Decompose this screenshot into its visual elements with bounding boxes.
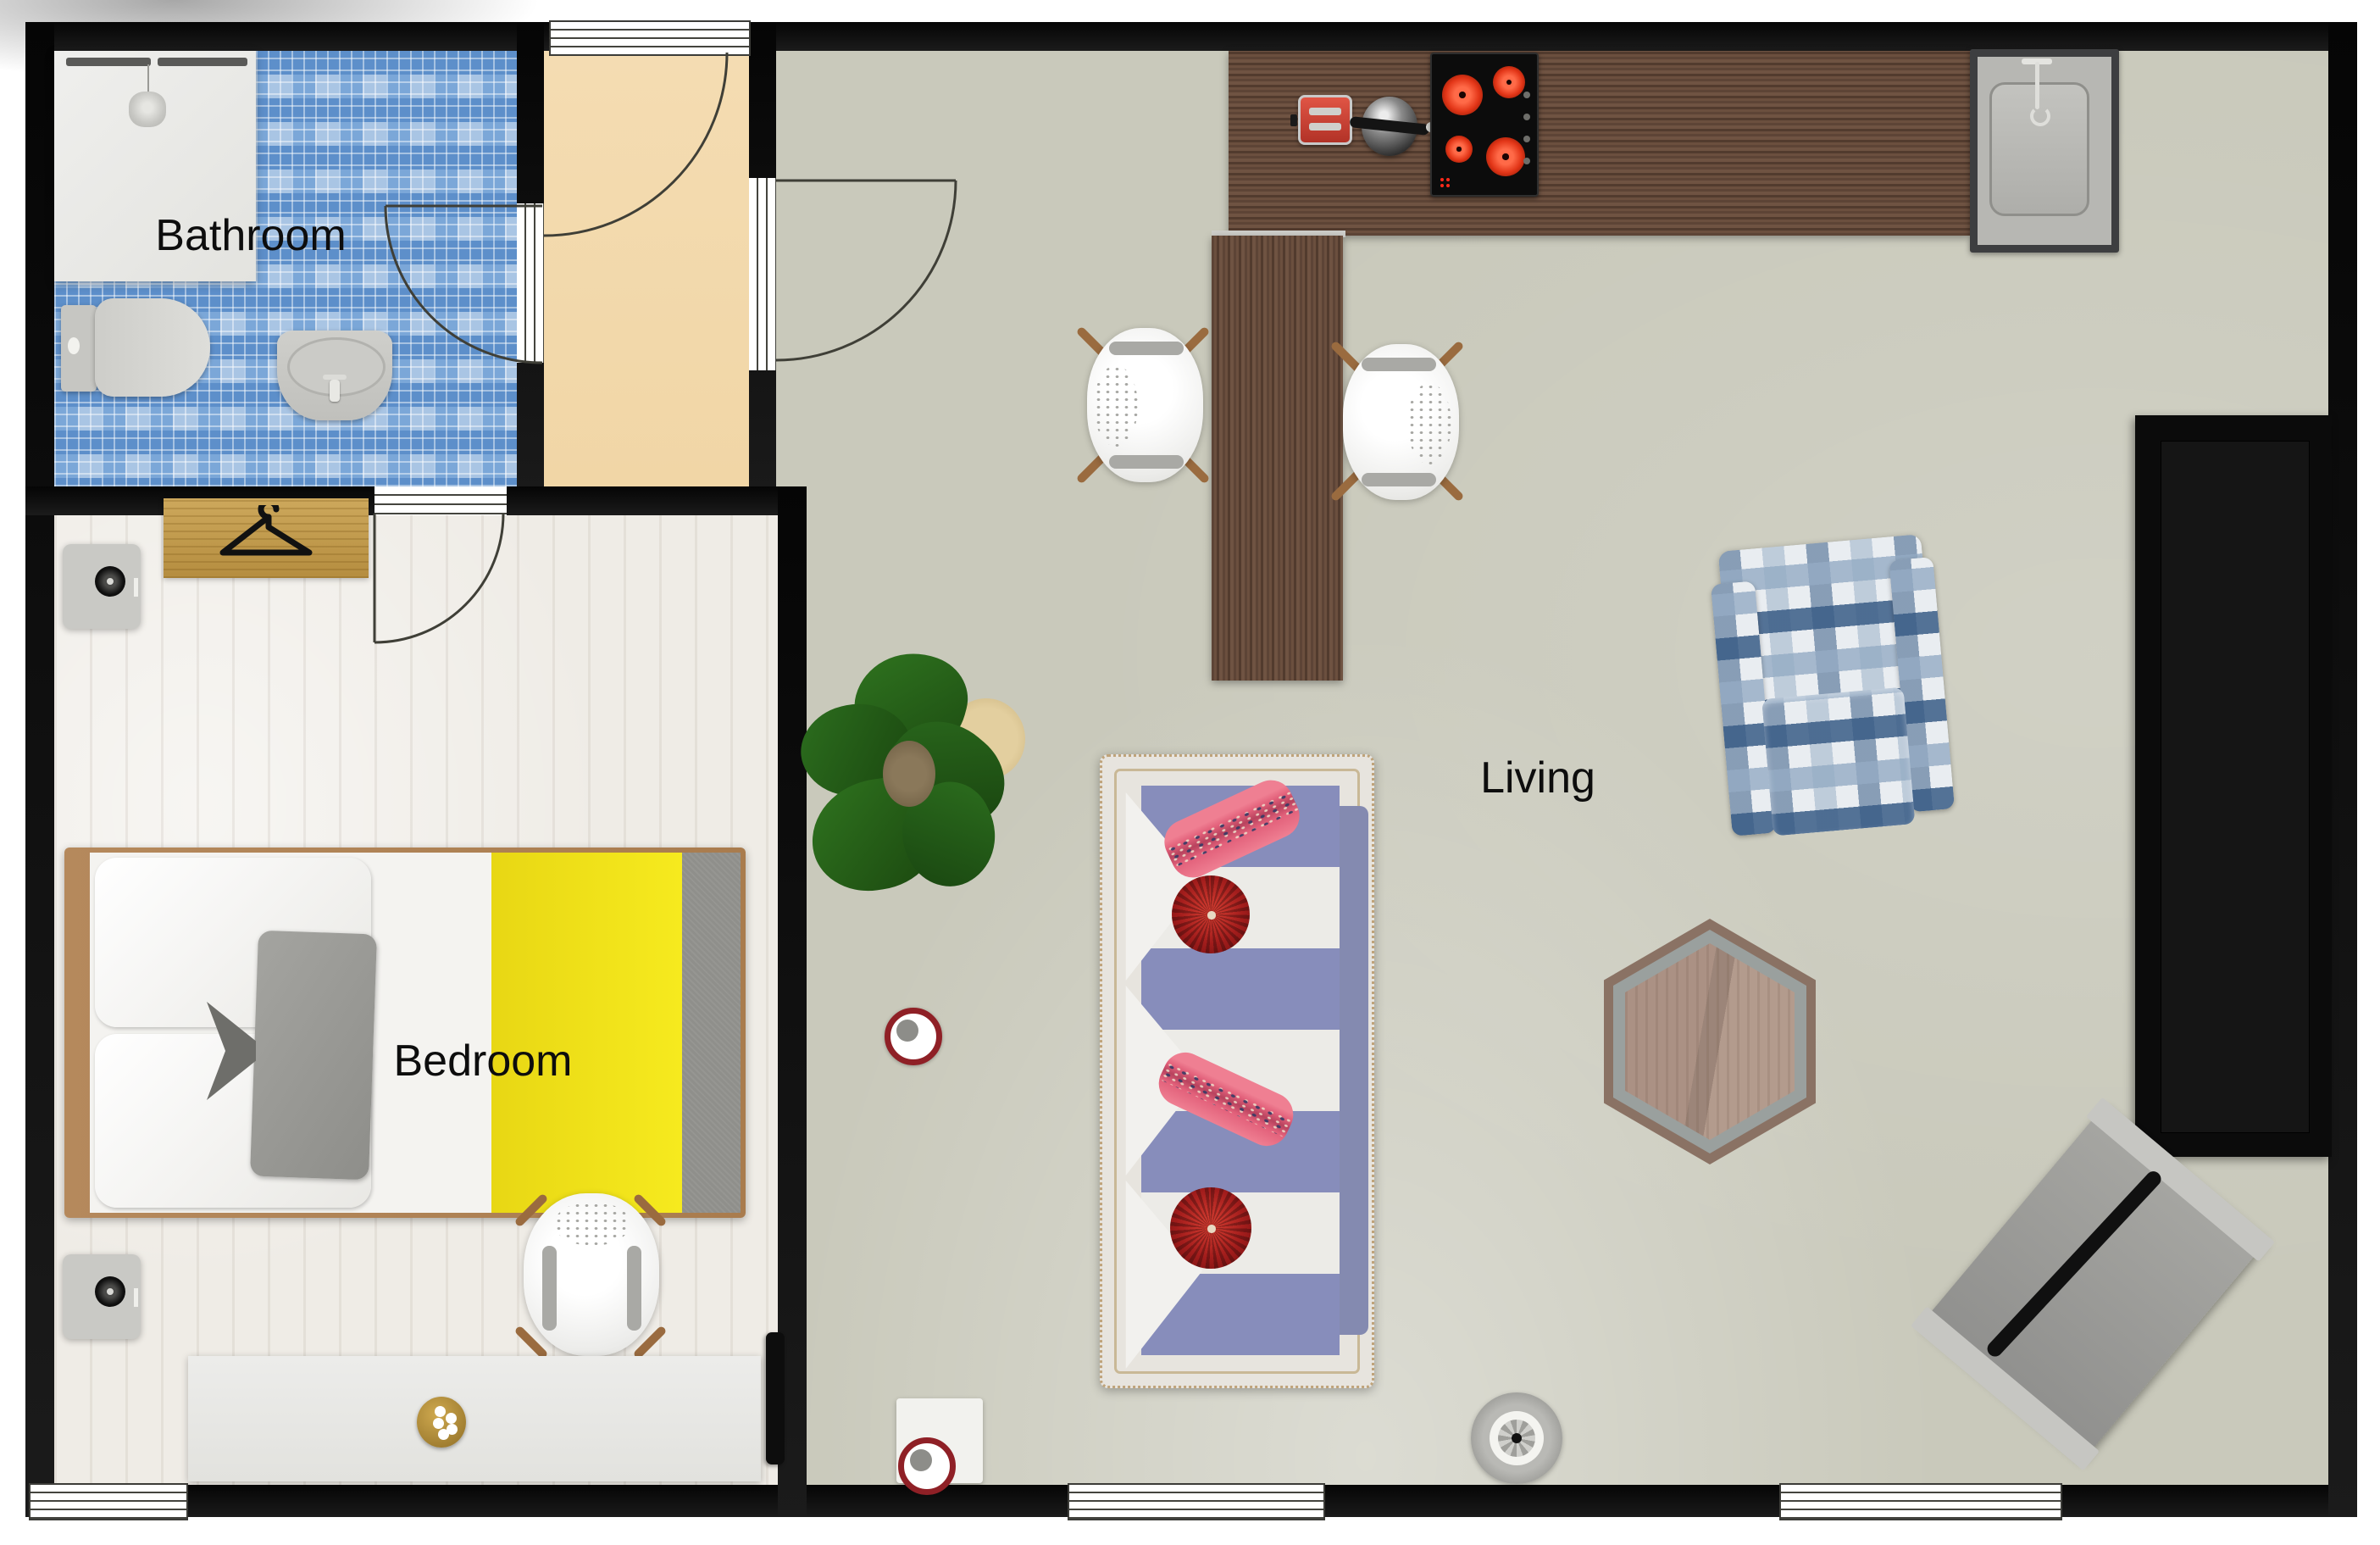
bathroom-label: Bathroom	[155, 210, 346, 261]
smart-device-center	[910, 1449, 932, 1471]
cooktop-burner	[1445, 136, 1473, 163]
media-unit-inner	[2161, 441, 2310, 1133]
floor-plan: Bathroom Bedroom	[0, 0, 2380, 1545]
bottom-bedroom-window[interactable]	[29, 1483, 188, 1520]
wall-left	[25, 22, 54, 1517]
chair-perforation	[554, 1202, 630, 1246]
desk-chair[interactable]	[519, 1193, 664, 1359]
bed-blanket-gray	[682, 853, 741, 1213]
desk[interactable]	[188, 1356, 761, 1481]
chair-slot	[1362, 473, 1436, 486]
chair-perforation	[1407, 383, 1451, 464]
toaster-slot	[1309, 123, 1341, 131]
plaid-armchair[interactable]	[1708, 533, 1955, 840]
smart-device[interactable]	[885, 1008, 942, 1065]
bottom-living-window-left[interactable]	[1068, 1483, 1325, 1520]
washbasin[interactable]	[277, 331, 392, 420]
dining-table[interactable]	[1212, 236, 1343, 681]
double-bed[interactable]	[64, 848, 746, 1218]
bed-pillow-gray	[250, 931, 377, 1181]
basin-faucet	[330, 380, 340, 402]
chair-slot	[1109, 455, 1184, 469]
cooktop-burner	[1486, 137, 1525, 176]
shower-rail	[66, 58, 151, 66]
plant-stem	[883, 741, 935, 807]
bottom-living-window-right[interactable]	[1779, 1483, 2062, 1520]
cooktop-knobs	[1523, 92, 1530, 98]
chair-slot	[542, 1246, 557, 1331]
chair-slot	[1109, 342, 1184, 355]
nightstand-handle	[134, 1288, 138, 1307]
lamp-bottom[interactable]	[95, 1276, 125, 1307]
chair-slot	[627, 1246, 641, 1331]
chair-perforation	[1094, 365, 1138, 447]
top-entry-window[interactable]	[549, 20, 751, 56]
striped-sofa[interactable]	[1100, 754, 1374, 1388]
sink-faucet-hook	[2030, 106, 2050, 126]
sink-faucet-spout	[2035, 62, 2039, 109]
kitchen-sink[interactable]	[1970, 49, 2119, 253]
toilet-flush-button	[68, 337, 80, 354]
potted-plant[interactable]	[805, 653, 1017, 898]
smart-device-on-dock[interactable]	[898, 1437, 956, 1495]
shower-head	[129, 92, 166, 127]
hanger-icon	[216, 505, 316, 571]
sofa-front-apron	[1340, 806, 1368, 1335]
entry-living-door-frame[interactable]	[749, 178, 776, 370]
wall-right	[2328, 22, 2357, 1517]
sink-basin	[1989, 82, 2089, 216]
tray-items	[435, 1406, 446, 1417]
black-media-unit[interactable]	[2135, 415, 2332, 1157]
chair-slot	[1362, 358, 1436, 371]
chair-shell	[1343, 344, 1459, 500]
bed-sheet-yellow	[491, 853, 682, 1213]
sofa-round-pillow	[1170, 1187, 1251, 1269]
living-label: Living	[1480, 753, 1595, 803]
robot-vacuum[interactable]	[1471, 1392, 1562, 1484]
chair-shell	[1087, 328, 1203, 482]
cooktop[interactable]	[1430, 53, 1539, 197]
wall-top	[25, 22, 2357, 51]
gold-tray[interactable]	[417, 1397, 466, 1448]
kettle[interactable]	[1362, 97, 1417, 156]
smart-device-center	[896, 1020, 918, 1042]
armchair-seat	[1761, 687, 1915, 836]
bathroom-door-frame[interactable]	[517, 203, 544, 363]
toaster-lever	[1290, 114, 1297, 126]
toaster[interactable]	[1298, 95, 1352, 145]
cooktop-burner	[1493, 66, 1525, 98]
wall-radiator[interactable]	[766, 1332, 785, 1464]
nightstand-bottom[interactable]	[63, 1254, 141, 1339]
nightstand-top[interactable]	[63, 544, 141, 629]
sofa-round-pillow	[1172, 875, 1250, 953]
hanger-rack[interactable]	[164, 498, 369, 578]
cooktop-burner	[1442, 75, 1483, 115]
entry-floor	[544, 51, 749, 486]
toaster-slot	[1309, 108, 1341, 115]
basin-handle	[323, 375, 347, 380]
bedroom-door-frame[interactable]	[374, 486, 507, 515]
shower-rail	[158, 58, 247, 66]
cooktop-indicator	[1440, 178, 1444, 181]
chair-shell	[524, 1193, 659, 1356]
toilet[interactable]	[61, 298, 210, 397]
lamp-top[interactable]	[95, 566, 125, 597]
bar-chair-left[interactable]	[1087, 325, 1206, 486]
nightstand-handle	[134, 578, 138, 597]
toilet-bowl	[95, 298, 210, 397]
bar-chair-right[interactable]	[1341, 339, 1460, 505]
bedroom-label: Bedroom	[394, 1036, 573, 1087]
vacuum-center	[1512, 1433, 1522, 1443]
